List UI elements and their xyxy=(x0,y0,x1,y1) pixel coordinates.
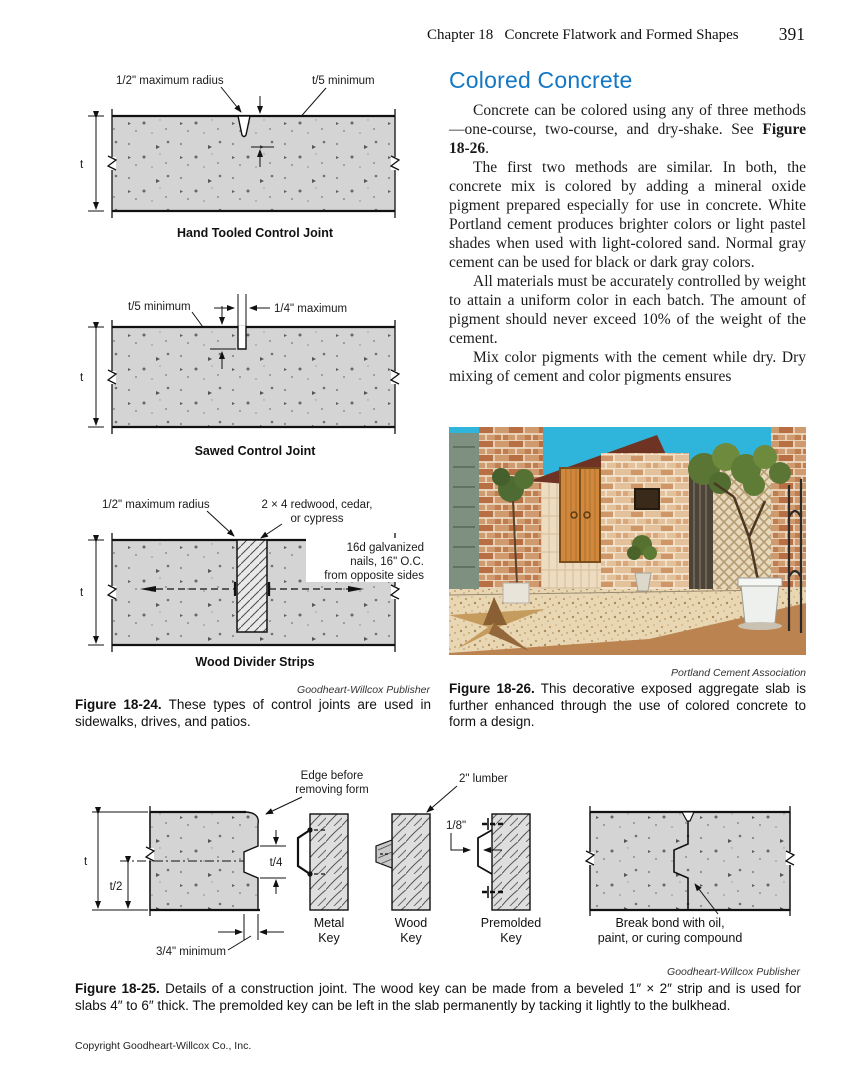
label-t: t xyxy=(80,159,84,171)
figure-18-25-caption-label: Figure 18-25. xyxy=(75,981,160,996)
label-nails-2: nails, 16" O.C. xyxy=(350,556,424,568)
caption-metal-key: Metal Key xyxy=(304,916,354,946)
metal-key-board xyxy=(310,814,348,910)
label-t4: t/4 xyxy=(270,857,283,869)
caption-premolded-key: Premolded Key xyxy=(476,916,546,946)
running-head: Chapter 18 Concrete Flatwork and Formed … xyxy=(427,27,739,44)
label-wood-2: or cypress xyxy=(290,513,343,525)
label-edge-1: Edge before xyxy=(301,770,364,782)
label-lumber: 2" lumber xyxy=(459,773,508,785)
figure-18-26-caption: Figure 18-26. This decorative exposed ag… xyxy=(449,681,806,731)
label-depth: t/5 minimum xyxy=(312,75,375,87)
photo-planter xyxy=(741,585,779,623)
figure-18-25-caption: Figure 18-25. Details of a construction … xyxy=(75,981,801,1014)
label-width: 1/4" maximum xyxy=(274,303,347,315)
label-min: 3/4" minimum xyxy=(156,946,226,958)
label-t: t xyxy=(80,372,84,384)
figure-18-24-credit: Goodheart-Willcox Publisher xyxy=(180,684,430,696)
copyright-line: Copyright Goodheart-Willcox Co., Inc. xyxy=(75,1040,251,1052)
caption-break-bond-line2: paint, or curing compound xyxy=(570,931,770,946)
label-depth: t/5 minimum xyxy=(128,301,191,313)
section-title: Colored Concrete xyxy=(449,67,632,94)
paragraph-1: Concrete can be colored using any of thr… xyxy=(449,101,806,158)
photo-gate xyxy=(689,471,713,597)
paragraph-4: Mix color pigments with the cement while… xyxy=(449,348,806,386)
paragraph-2: The first two methods are similar. In bo… xyxy=(449,158,806,272)
caption-wood-key: Wood Key xyxy=(386,916,436,946)
label-nails-1: 16d galvanized xyxy=(347,542,424,554)
textbook-page: Chapter 18 Concrete Flatwork and Formed … xyxy=(0,0,849,1087)
caption-break-bond-line1: Break bond with oil, xyxy=(570,916,770,931)
premolded-key-board xyxy=(492,814,530,910)
label-radius: 1/2" maximum radius xyxy=(102,499,210,511)
diagram-wood-divider: 1/2" maximum radius 2 × 4 redwood, cedar… xyxy=(70,492,430,662)
label-eighth: 1/8" xyxy=(446,820,466,832)
diagram-hand-tooled-joint: 1/2" maximum radius t/5 minimum t xyxy=(70,68,430,223)
figure-18-24-caption-label: Figure 18-24. xyxy=(75,697,162,712)
photo-brick-wall xyxy=(479,427,543,595)
diagram-caption-wood-divider: Wood Divider Strips xyxy=(120,655,390,669)
diagram-caption-hand-tooled: Hand Tooled Control Joint xyxy=(120,226,390,240)
figure-18-24-caption: Figure 18-24. These types of control joi… xyxy=(75,697,431,730)
diagram-sawed-joint: t/5 minimum 1/4" maximum t xyxy=(70,280,430,440)
paragraph-1-end: . xyxy=(485,140,489,157)
joined-slabs xyxy=(590,812,790,910)
paragraph-1-text: Concrete can be colored using any of thr… xyxy=(449,102,806,138)
label-t: t xyxy=(80,587,84,599)
article-body: Concrete can be colored using any of thr… xyxy=(449,101,806,386)
page-number: 391 xyxy=(758,24,805,45)
wood-key-board xyxy=(392,814,430,910)
label-radius: 1/2" maximum radius xyxy=(116,75,224,87)
diagram-caption-sawed: Sawed Control Joint xyxy=(120,444,390,458)
label-nails-3: from opposite sides xyxy=(324,570,424,582)
label-edge-2: removing form xyxy=(295,784,369,796)
figure-18-26-credit: Portland Cement Association xyxy=(556,667,806,679)
label-t: t xyxy=(84,856,88,868)
figure-18-25-caption-text: Details of a construction joint. The woo… xyxy=(75,981,801,1013)
paragraph-3: All materials must be accurately control… xyxy=(449,272,806,348)
caption-break-bond: Break bond with oil, paint, or curing co… xyxy=(570,916,770,946)
figure-18-25-credit: Goodheart-Willcox Publisher xyxy=(550,966,800,978)
label-wood-1: 2 × 4 redwood, cedar, xyxy=(262,499,373,511)
wood-strip xyxy=(237,540,267,632)
figure-18-26-photo xyxy=(449,427,806,655)
figure-18-26-caption-label: Figure 18-26. xyxy=(449,681,535,696)
label-t2: t/2 xyxy=(110,881,123,893)
